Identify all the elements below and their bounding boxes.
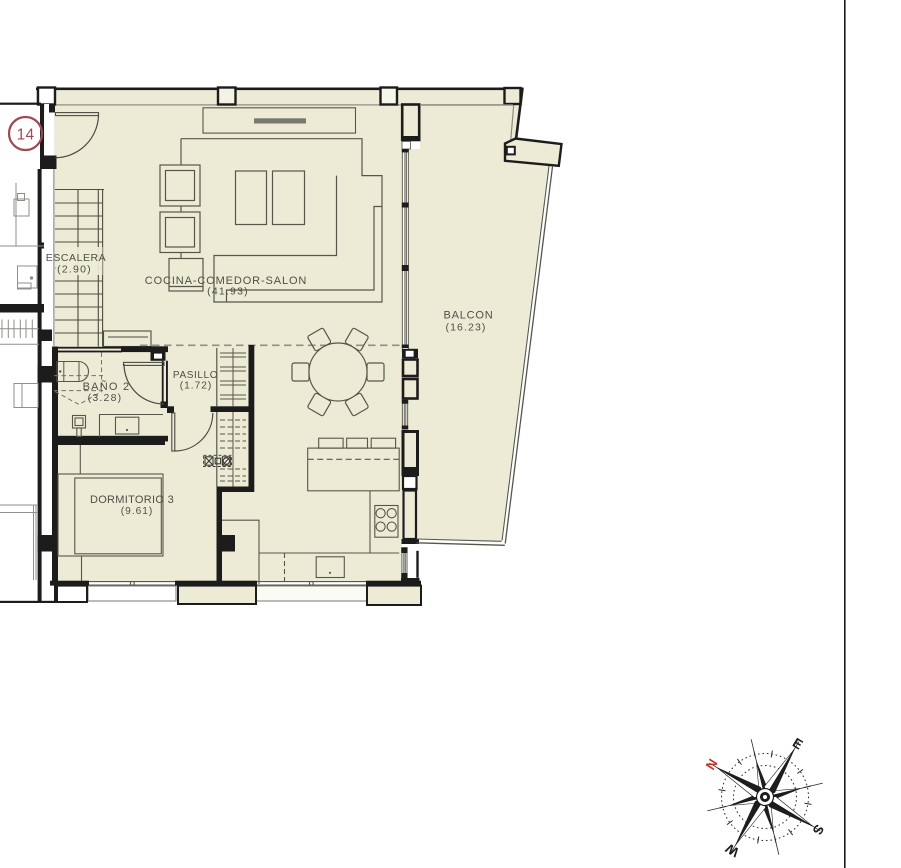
svg-text:(3.28): (3.28) [88, 392, 123, 404]
svg-text:PASILLO: PASILLO [173, 370, 218, 381]
svg-text:BALCON: BALCON [443, 310, 493, 322]
svg-text:(9.61): (9.61) [121, 506, 154, 517]
svg-text:(1.72): (1.72) [180, 381, 213, 392]
svg-text:14: 14 [17, 126, 35, 143]
svg-text:ESCALERA: ESCALERA [46, 252, 106, 264]
svg-text:(2.90): (2.90) [57, 264, 92, 276]
svg-text:(16.23): (16.23) [446, 322, 487, 334]
